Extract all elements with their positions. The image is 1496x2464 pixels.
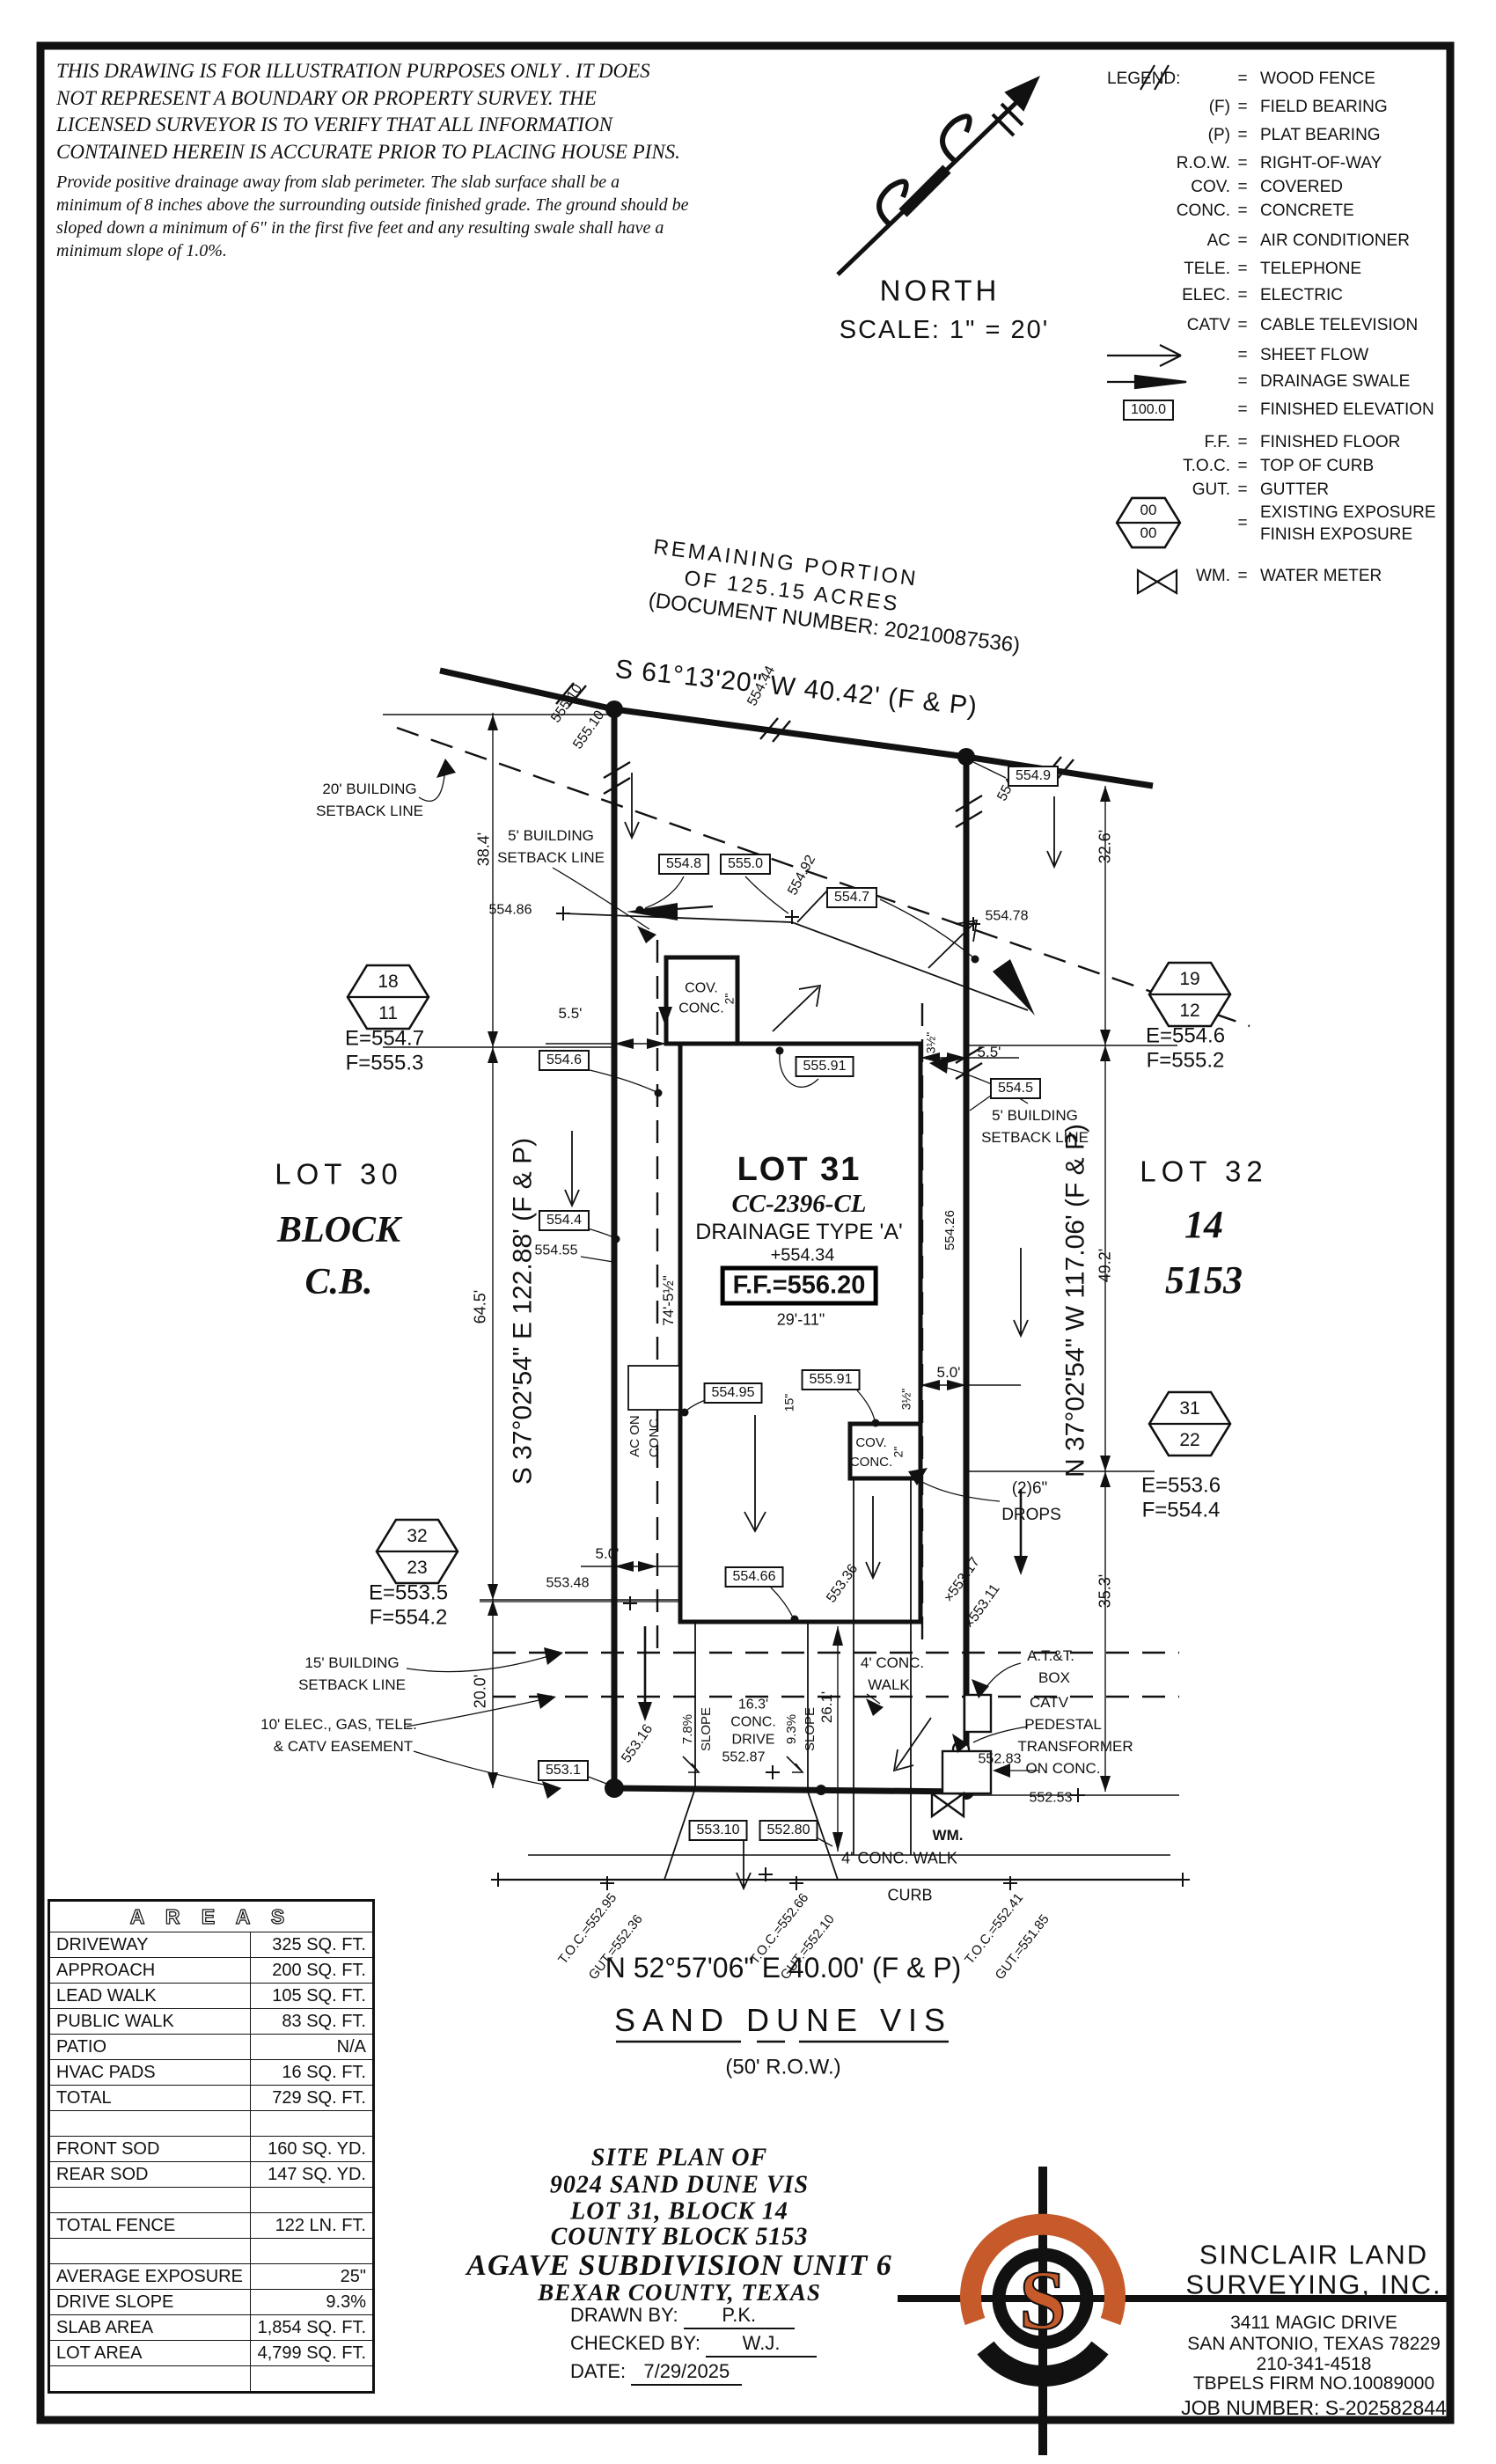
dimension: 5.5'	[978, 1045, 1001, 1060]
north-arrow-icon	[838, 77, 1038, 275]
areas-row-label	[49, 2239, 251, 2264]
drive-label: 16.3'	[738, 1698, 768, 1713]
dimension: 26.1'	[819, 1691, 835, 1723]
dimension: 5.5'	[559, 1006, 583, 1022]
areas-row-label: PUBLIC WALK	[49, 2009, 251, 2035]
ac-pad-label: AC ON	[628, 1415, 642, 1457]
dimension: 38.4'	[476, 832, 493, 866]
drainage-type-label: DRAINAGE TYPE 'A'	[695, 1221, 903, 1243]
exposure-values: E=554.6	[1146, 1024, 1225, 1046]
exposure-values: E=553.6	[1141, 1474, 1221, 1496]
finished-elevation-box: 553.10	[689, 1820, 748, 1841]
exposure-hex-value: 12	[1179, 1001, 1199, 1021]
setback-label: 5' BUILDING	[992, 1108, 1078, 1124]
legend-desc: TELEPHONE	[1260, 260, 1361, 278]
legend-abbr: CONC.	[1177, 202, 1230, 220]
house-dim: 29'-11"	[777, 1312, 825, 1329]
exposure-hex-value: 22	[1179, 1431, 1199, 1450]
finished-elevation-box: 554.6	[539, 1050, 590, 1071]
title-block-line: AGAVE SUBDIVISION UNIT 6	[466, 2250, 891, 2282]
areas-row-label: TOTAL FENCE	[49, 2213, 251, 2239]
areas-row-value: 160 SQ. YD.	[250, 2137, 373, 2162]
legend-equals: =	[1237, 179, 1247, 196]
legend-desc: FINISHED FLOOR	[1260, 434, 1400, 451]
legend-desc: PLAT BEARING	[1260, 127, 1381, 144]
dimension: 64.5'	[473, 1290, 489, 1324]
areas-row-value: 83 SQ. FT.	[250, 2009, 373, 2035]
att-box-label: BOX	[1038, 1670, 1070, 1686]
disclaimer-paragraph-2: Provide positive drainage away from slab…	[56, 171, 725, 262]
legend-equals: =	[1237, 127, 1247, 144]
slope-label: 7.8%	[681, 1714, 695, 1744]
exposure-hex-value: 18	[378, 972, 398, 992]
water-meter-label: WM.	[933, 1828, 964, 1844]
att-box-label: A.T.&T.	[1027, 1648, 1074, 1664]
finished-elevation-box: 554.66	[725, 1566, 784, 1588]
catv-pedestal-label: TRANSFORMER	[1017, 1739, 1133, 1755]
spot-elevation: 554.55	[535, 1244, 578, 1259]
spot-elevation: 552.87	[722, 1751, 766, 1766]
legend-equals: =	[1237, 515, 1247, 532]
areas-row-value	[250, 2188, 373, 2213]
finished-elevation-box: 555.0	[720, 854, 771, 875]
areas-row-value	[250, 2239, 373, 2264]
north-label: NORTH	[880, 276, 1001, 307]
legend-desc: FIELD BEARING	[1260, 99, 1388, 116]
bearing-west-line: S 37°02'54" E 122.88' (F & P)	[509, 1138, 537, 1485]
date-value: 7/29/2025	[631, 2360, 742, 2386]
drop-dim: 3½"	[900, 1389, 913, 1410]
areas-row-label: DRIVE SLOPE	[49, 2290, 251, 2315]
finished-elevation-box: 552.80	[759, 1820, 818, 1841]
legend-desc: FINISH EXPOSURE	[1260, 526, 1412, 544]
legend-equals: =	[1237, 458, 1247, 475]
drive-label: DRIVE	[732, 1734, 775, 1749]
areas-row-value: 4,799 SQ. FT.	[250, 2341, 373, 2366]
areas-table: A R E A SDRIVEWAY325 SQ. FT.APPROACH200 …	[48, 1899, 375, 2394]
logo-s-letter: S	[1019, 2253, 1066, 2347]
areas-row-label: AVERAGE EXPOSURE	[49, 2264, 251, 2290]
areas-row-value: 16 SQ. FT.	[250, 2060, 373, 2086]
bearing-street-line: N 52°57'06" E 40.00' (F & P)	[605, 1954, 962, 1984]
spot-elevation: 554.86	[489, 904, 532, 919]
areas-row-label: TOTAL	[49, 2086, 251, 2111]
easement-label: 10' ELEC., GAS, TELE.	[260, 1717, 417, 1733]
legend-desc: COVERED	[1260, 179, 1343, 196]
scale-label: SCALE: 1" = 20'	[840, 317, 1049, 343]
exposure-hex-value: 32	[407, 1527, 427, 1546]
catv-pedestal-label: ON CONC.	[1026, 1761, 1101, 1777]
spot-elevation: +554.34	[771, 1247, 835, 1265]
legend-desc: TOP OF CURB	[1260, 458, 1374, 475]
areas-row-label: REAR SOD	[49, 2162, 251, 2188]
spot-elevation: 552.53	[1030, 1792, 1073, 1807]
finished-elevation-box: 554.8	[658, 854, 709, 875]
areas-row-label: LEAD WALK	[49, 1984, 251, 2009]
title-block-line: SITE PLAN OF	[591, 2145, 767, 2170]
street-row-label: (50' R.O.W.)	[725, 2056, 840, 2078]
lot-31-plan-code: CC-2396-CL	[731, 1191, 866, 1217]
surveyor-info-line: SAN ANTONIO, TEXAS 78229	[1187, 2335, 1441, 2354]
legend-abbr: WM.	[1196, 568, 1230, 585]
setback-label: 15' BUILDING	[304, 1655, 399, 1671]
legend-desc: SHEET FLOW	[1260, 347, 1368, 364]
areas-row-value: 325 SQ. FT.	[250, 1932, 373, 1958]
curb-label: CURB	[887, 1888, 932, 1904]
dimension: 35.3'	[1097, 1574, 1114, 1608]
surveyor-info-line: SURVEYING, INC.	[1185, 2271, 1441, 2300]
areas-row-label	[49, 2366, 251, 2393]
legend-desc: EXISTING EXPOSURE	[1260, 504, 1436, 522]
spot-elevation: 553.48	[546, 1577, 590, 1592]
dimension: 20.0'	[473, 1675, 489, 1708]
legend-equals: =	[1237, 99, 1247, 116]
legend-abbr: ELEC.	[1182, 287, 1230, 304]
drops-label: DROPS	[1001, 1507, 1061, 1524]
areas-row-value: 147 SQ. YD.	[250, 2162, 373, 2188]
surveyor-info-line: 210-341-4518	[1257, 2355, 1372, 2374]
drops-label: (2)6"	[1012, 1480, 1048, 1498]
drop-dim: 2"	[723, 994, 737, 1005]
areas-row-label	[49, 2188, 251, 2213]
legend-equals: =	[1237, 317, 1247, 334]
exposure-hex-value: 23	[407, 1558, 427, 1578]
exposure-values: E=553.5	[369, 1581, 448, 1603]
areas-row-label	[49, 2111, 251, 2137]
areas-row-label: SLAB AREA	[49, 2315, 251, 2341]
finished-elevation-box: 554.9	[1008, 766, 1059, 787]
areas-row-value	[250, 2111, 373, 2137]
title-block-line: LOT 31, BLOCK 14	[570, 2198, 788, 2224]
areas-row-label: LOT AREA	[49, 2341, 251, 2366]
areas-row-label: APPROACH	[49, 1958, 251, 1984]
legend-abbr: (F)	[1209, 99, 1230, 116]
checked-by-value: W.J.	[706, 2332, 817, 2358]
legend-equals: =	[1237, 373, 1247, 391]
legend-equals: =	[1237, 232, 1247, 250]
drawn-by-value: P.K.	[684, 2304, 795, 2329]
areas-row-value: 729 SQ. FT.	[250, 2086, 373, 2111]
legend-desc: RIGHT-OF-WAY	[1260, 155, 1382, 172]
surveyor-info-line: JOB NUMBER: S-202582844	[1181, 2397, 1447, 2418]
disclaimer-note: THIS DRAWING IS FOR ILLUSTRATION PURPOSE…	[56, 58, 725, 262]
legend-abbr: (P)	[1208, 127, 1230, 144]
catv-pedestal-label: PEDESTAL	[1024, 1717, 1102, 1733]
legend-desc: ELECTRIC	[1260, 287, 1343, 304]
drop-dim: 3½"	[925, 1032, 938, 1053]
legend-desc: CABLE TELEVISION	[1260, 317, 1418, 334]
lot-30-label: LOT 30	[275, 1160, 402, 1191]
areas-row-value: N/A	[250, 2035, 373, 2060]
exposure-values: F=555.2	[1147, 1049, 1225, 1071]
legend-abbr: F.F.	[1204, 434, 1230, 451]
exposure-values: F=554.4	[1142, 1499, 1221, 1521]
legend-desc: DRAINAGE SWALE	[1260, 373, 1410, 391]
dimension: 32.6'	[1097, 830, 1114, 863]
finished-elevation-box: 554.5	[990, 1078, 1041, 1099]
slope-label: 9.3%	[785, 1714, 799, 1744]
date-row: DATE: 7/29/2025	[570, 2360, 742, 2386]
legend-hex-value: 00	[1140, 502, 1157, 518]
surveyor-info-line: TBPELS FIRM NO.10089000	[1193, 2374, 1434, 2394]
catv-pedestal-label: CATV	[1030, 1695, 1068, 1711]
finished-elevation-box: 555.91	[796, 1056, 854, 1077]
exposure-hex-value: 19	[1179, 970, 1199, 989]
legend-abbr: TELE.	[1184, 260, 1230, 278]
dimension: 49.2'	[1097, 1249, 1114, 1282]
disclaimer-paragraph-1: THIS DRAWING IS FOR ILLUSTRATION PURPOSE…	[56, 58, 725, 165]
drawn-by-row: DRAWN BY: P.K.	[570, 2304, 795, 2329]
legend-desc: AIR CONDITIONER	[1260, 232, 1410, 250]
setback-label: 20' BUILDING	[322, 781, 416, 797]
drop-dim: 2"	[892, 1447, 906, 1458]
lot-31-label: LOT 31	[737, 1153, 862, 1188]
cov-conc-label: COV.	[855, 1436, 886, 1450]
legend-title: LEGEND:	[1107, 70, 1180, 88]
walk-label: WALK	[868, 1677, 910, 1693]
block-label: C.B.	[304, 1263, 372, 1302]
legend-abbr: AC	[1207, 232, 1230, 250]
areas-row-value: 200 SQ. FT.	[250, 1958, 373, 1984]
areas-row-label: HVAC PADS	[49, 2060, 251, 2086]
legend-desc: WOOD FENCE	[1260, 70, 1375, 88]
checked-by-row: CHECKED BY: W.J.	[570, 2332, 817, 2358]
title-block-line: 9024 SAND DUNE VIS	[550, 2172, 809, 2197]
legend-equals: =	[1237, 434, 1247, 451]
legend-equals: =	[1237, 287, 1247, 304]
areas-row-value: 9.3%	[250, 2290, 373, 2315]
dimension: 5.0'	[937, 1365, 961, 1381]
block-label: BLOCK	[277, 1211, 400, 1250]
legend-hex-value: 00	[1140, 525, 1157, 541]
legend-desc: WATER METER	[1260, 568, 1382, 585]
lot-32-label: LOT 32	[1140, 1157, 1267, 1188]
slope-label: SLOPE	[803, 1707, 818, 1751]
ac-pad-label: CONC.	[648, 1415, 662, 1457]
exposure-hex-value: 31	[1179, 1399, 1199, 1419]
legend-abbr: CATV	[1187, 317, 1230, 334]
title-block-line: COUNTY BLOCK 5153	[551, 2224, 809, 2249]
finished-elevation-box: 554.95	[704, 1382, 763, 1404]
slope-label: SLOPE	[700, 1707, 714, 1751]
legend-abbr: T.O.C.	[1183, 458, 1230, 475]
site-plan-sheet: S THIS DRAWING IS FOR ILLUSTRATION PURPO…	[0, 0, 1496, 2464]
areas-row-label: PATIO	[49, 2035, 251, 2060]
legend-finished-elevation-box: 100.0	[1123, 400, 1174, 421]
areas-row-value: 1,854 SQ. FT.	[250, 2315, 373, 2341]
areas-row-label: DRIVEWAY	[49, 1932, 251, 1958]
legend-equals: =	[1237, 260, 1247, 278]
legend-abbr: COV.	[1191, 179, 1230, 196]
surveyor-info-line: 3411 MAGIC DRIVE	[1230, 2314, 1397, 2333]
setback-label: SETBACK LINE	[298, 1677, 406, 1693]
legend-equals: =	[1237, 568, 1247, 585]
block-14-label: 14	[1184, 1205, 1223, 1245]
legend-equals: =	[1237, 202, 1247, 220]
finished-elevation-box: 554.7	[826, 887, 877, 908]
drop-dim: 15"	[783, 1394, 796, 1412]
wood-fence-hashes	[556, 683, 1074, 1079]
legend-abbr: R.O.W.	[1177, 155, 1230, 172]
setback-label: SETBACK LINE	[316, 803, 423, 819]
title-block-line: BEXAR COUNTY, TEXAS	[538, 2280, 821, 2305]
exposure-values: E=554.7	[345, 1027, 424, 1049]
exposure-values: F=555.3	[346, 1052, 424, 1074]
finished-elevation-box: 555.91	[802, 1369, 861, 1390]
setback-label: SETBACK LINE	[497, 850, 605, 866]
legend-equals: =	[1237, 401, 1247, 419]
areas-row-value: 105 SQ. FT.	[250, 1984, 373, 2009]
spot-elevation: 554.26	[943, 1210, 957, 1250]
walk-label: 4' CONC.	[861, 1655, 924, 1671]
legend-equals: =	[1237, 347, 1247, 364]
surveyor-info-line: SINCLAIR LAND	[1199, 2241, 1428, 2270]
areas-row-label: FRONT SOD	[49, 2137, 251, 2162]
exposure-hex-value: 11	[378, 1004, 398, 1023]
exposure-values: F=554.2	[370, 1606, 448, 1628]
drawn-by-label: DRAWN BY:	[570, 2304, 678, 2326]
county-block-label: 5153	[1165, 1260, 1243, 1301]
drive-label: CONC.	[730, 1716, 776, 1731]
cov-conc-label: CONC.	[678, 1002, 724, 1017]
finished-elevation-box: 553.1	[538, 1760, 589, 1781]
spot-elevation: 552.83	[979, 1753, 1022, 1768]
house-dim: 74'-5½"	[661, 1275, 677, 1325]
walk-label: 4' CONC. WALK	[841, 1851, 957, 1867]
legend-desc: GUTTER	[1260, 481, 1329, 499]
legend-equals: =	[1237, 481, 1247, 499]
areas-table-title: A R E A S	[49, 1901, 374, 1932]
legend-desc: CONCRETE	[1260, 202, 1354, 220]
checked-by-label: CHECKED BY:	[570, 2332, 700, 2354]
areas-row-value: 122 LN. FT.	[250, 2213, 373, 2239]
cov-conc-label: CONC.	[850, 1456, 892, 1470]
areas-row-value	[250, 2366, 373, 2393]
legend-abbr: GUT.	[1192, 481, 1230, 499]
dimension: 5.0'	[596, 1546, 620, 1562]
finished-floor-box: F.F.=556.20	[721, 1266, 878, 1306]
date-label: DATE:	[570, 2360, 626, 2382]
legend-equals: =	[1237, 155, 1247, 172]
cov-conc-label: COV.	[685, 982, 718, 997]
legend-equals: =	[1237, 70, 1247, 88]
finished-elevation-box: 554.4	[539, 1210, 590, 1231]
easement-label: & CATV EASEMENT	[274, 1739, 413, 1755]
bearing-east-line: N 37°02'54" W 117.06' (F & P)	[1061, 1124, 1089, 1478]
street-name: SAND DUNE VIS	[614, 2004, 952, 2037]
spot-elevation: 554.78	[986, 910, 1029, 925]
water-meter-icon	[932, 1793, 964, 1816]
setback-label: 5' BUILDING	[508, 828, 594, 844]
legend-desc: FINISHED ELEVATION	[1260, 401, 1434, 419]
areas-row-value: 25"	[250, 2264, 373, 2290]
